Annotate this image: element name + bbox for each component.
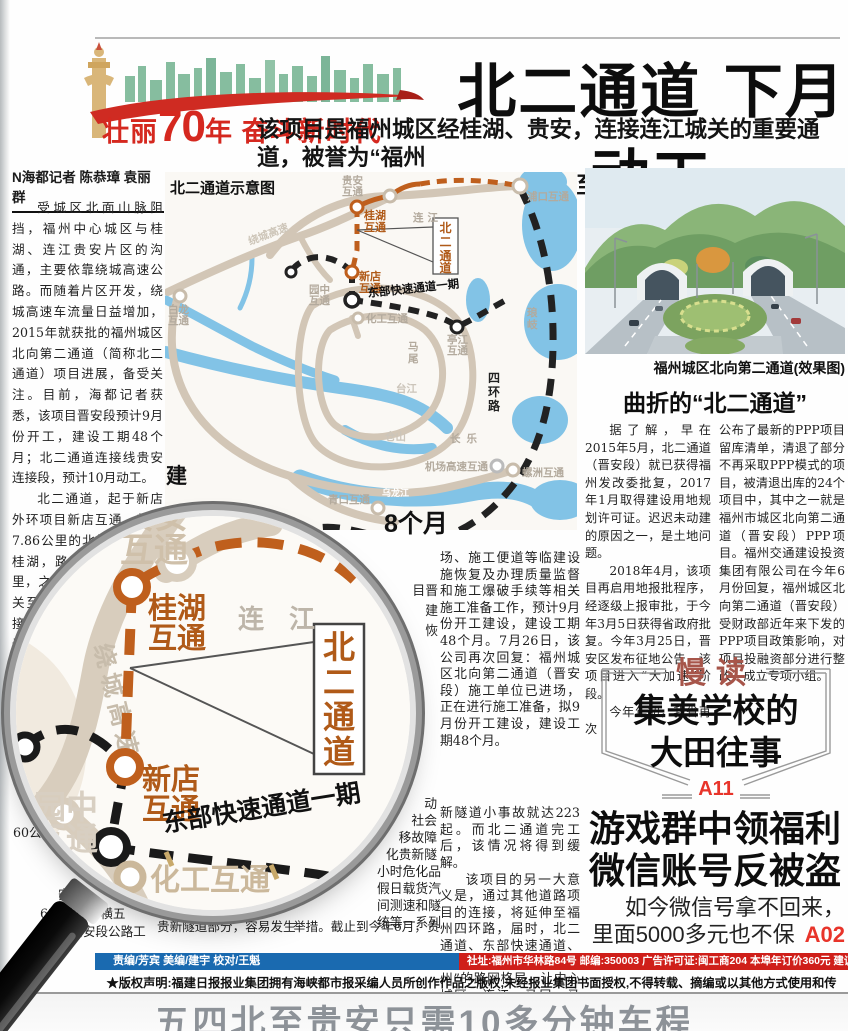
mid-col3-lastline: 举措。截止到今年6月，贵	[293, 916, 440, 935]
map-label-qingkou: 青口互通	[328, 493, 370, 506]
map-title: 北二通道示意图	[170, 179, 275, 197]
map-label-cangshan: 仓山	[384, 430, 406, 443]
promo-line2: 微信账号反被盗	[585, 850, 845, 892]
subtitle-line1: 该项目是福州城区经桂湖、贵安，连接连江城关的重要通道，被誉为“福州	[215, 116, 845, 172]
map-label-wulongjiang: 乌龙江	[382, 487, 409, 499]
map-label-taijiang: 台江	[396, 382, 417, 395]
promo-line1: 游戏群中领福利	[585, 808, 845, 850]
slow-read-tag: 慢读	[596, 648, 836, 692]
mid-col4-p2a: 新隧道小事故就达223起。而北二通道完工后，该情况将得到缓解。	[440, 806, 580, 872]
promo-headline: 游戏群中领福利 微信账号反被盗	[585, 808, 845, 892]
map-label-huagong: 化工互通	[366, 312, 408, 325]
mag-label-yuanzhong: 互通	[34, 820, 98, 858]
bottom-strip-headline: 五四北至贵安只需10多分钟车程	[0, 995, 848, 1031]
mag-box-char: 北	[323, 628, 355, 666]
mag-label-guihu: 桂湖	[148, 591, 206, 625]
map-label-yuanzhong: 互通	[309, 295, 330, 307]
editors-bar: 责编/芳宾 美编/建宇 校对/王魁	[95, 953, 459, 970]
promo-sub1: 如今微信号拿不回来，	[585, 894, 845, 921]
mid-col4-p1: 场、施工便道等临建设施恢复及办理质量监督和施工爆破手续等相关施工准备工作，预计9…	[440, 551, 580, 750]
magnifier-lens: 绕城高速	[16, 516, 410, 910]
magnified-map: 绕城高速	[16, 516, 410, 910]
address-bar: 社址:福州市华林路84号 邮编:350003 广告许可证:闽工商204 本埠年订…	[459, 953, 848, 970]
map-box-char: 道	[439, 260, 451, 275]
promo-page-ref: A02	[805, 922, 845, 947]
svg-text:路: 路	[488, 398, 501, 413]
newspaper-page: 壮丽70年 奋斗新时代 北二通道 下月动工 该项目是福州城区经桂湖、贵安，连接连…	[0, 0, 848, 1031]
map-label-guihu: 互通	[364, 221, 386, 234]
left-paragraph-1: 受城区北面山脉阻挡，福州中心城区与桂湖、连江贵安片区的沟通，主要依靠绕城高速公路…	[12, 198, 163, 489]
map-label-mawei: 马	[408, 341, 419, 353]
map-box-char: 二	[439, 235, 451, 249]
map-label-changle: 长乐	[450, 432, 483, 445]
map-label-guihu: 桂湖	[363, 208, 386, 222]
map-label-mawei: 尾	[408, 353, 419, 365]
svg-text:四: 四	[488, 371, 500, 385]
svg-text:环: 环	[488, 385, 500, 399]
mag-label-guian: 互通	[120, 531, 188, 571]
map-label-luozhou: 螺洲互通	[522, 466, 564, 479]
right-col1-p1: 据了解，早在2015年5月，北二通道（晋安段）就已获得福州发改委批复，2017年…	[585, 422, 711, 563]
page-edge-shadow	[0, 0, 10, 1031]
map-label-lianjiang: 连江	[413, 211, 442, 224]
mag-box-char: 道	[323, 733, 355, 771]
slow-read-title: 集美学校的 大田往事	[596, 690, 836, 774]
promo-sub2: 里面5000多元也不保	[592, 922, 795, 947]
mag-box-char: 通	[323, 698, 355, 736]
map-label-pukou: 浦口互通	[527, 190, 569, 203]
promo-subline: 如今微信号拿不回来， 里面5000多元也不保A02	[585, 894, 845, 948]
top-rule	[95, 37, 840, 39]
right-article-title: 曲折的“北二通道”	[585, 384, 845, 418]
slow-read-page-ref: A11	[596, 778, 836, 801]
map-label-xindian: 新店	[359, 269, 381, 283]
rendering-photo	[585, 168, 845, 354]
map-label-bailong: 互通	[168, 315, 189, 327]
map-label-guian: 互通	[342, 186, 363, 198]
map-label-sihuan: 四 环 路	[488, 371, 501, 413]
headline-fragment-jian: 建	[166, 460, 187, 490]
photo-caption: 福州城区北向第二通道(效果图)	[585, 358, 845, 378]
slogan-left: 壮丽	[102, 117, 158, 147]
map-label-langqi: 岐	[527, 318, 538, 331]
map-label-tingjiang: 互通	[447, 345, 468, 357]
slow-read-title-line1: 集美学校的	[596, 690, 836, 732]
ribbon-tail-icon	[396, 90, 424, 100]
mid-article-column: 场、施工便道等临建设施恢复及办理质量监督和施工爆破手续等相关施工准备工作，预计9…	[440, 551, 580, 1022]
mag-label-lianjiang: 连 江	[238, 605, 323, 635]
route-map: 北 二 通 道 北二通道示意图 贵安 互通 浦口互通 园中 互通	[165, 172, 577, 530]
slogan-70: 70	[158, 102, 205, 151]
slow-read-title-line2: 大田往事	[596, 732, 836, 774]
map-label-langqi: 琅	[527, 306, 538, 319]
mid-col2-lastline: 贵新隧道部分，容易发生	[157, 916, 296, 935]
map-label-jichang: 机场高速互通	[425, 460, 488, 473]
mag-label-huagong: 化工互通	[150, 863, 270, 898]
mag-label-guihu: 互通	[148, 621, 206, 655]
mag-label-xindian: 新店	[142, 762, 200, 796]
mag-box-char: 二	[323, 663, 355, 701]
